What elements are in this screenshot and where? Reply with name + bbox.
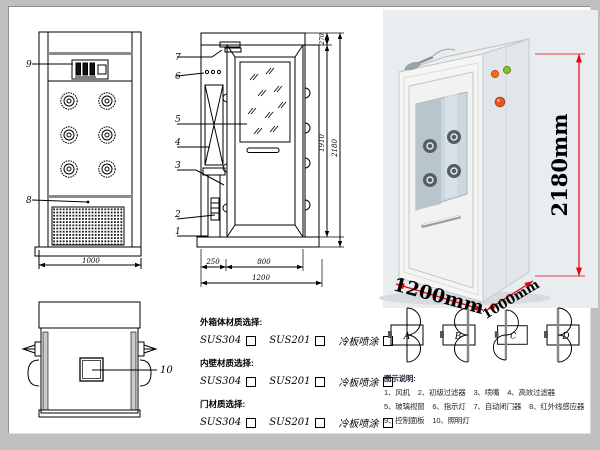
legend: 图示说明: 1、风机 2、初级过滤器 3、喷嘴 4、高效过滤器 5、玻璃视窗 6… bbox=[384, 372, 599, 428]
legend-item: 3、喷嘴 bbox=[473, 388, 499, 397]
material-options-row: SUS304 SUS201 冷板喷涂 bbox=[200, 415, 382, 430]
callout-lamp: 10 bbox=[160, 365, 173, 376]
material-options-row: SUS304 SUS201 冷板喷涂 bbox=[200, 333, 382, 348]
fan-filter-tower bbox=[203, 85, 225, 237]
legend-item: 5、玻璃视窗 bbox=[384, 402, 424, 411]
callout-control-panel: 9 bbox=[26, 60, 32, 70]
legend-item: 6、指示灯 bbox=[432, 402, 465, 411]
material-option-label: 冷板喷涂 bbox=[338, 374, 378, 389]
door-option-d: D bbox=[544, 306, 582, 364]
handle-left bbox=[28, 360, 39, 386]
top-view-drawing: 10 bbox=[22, 292, 187, 432]
air-grille bbox=[52, 207, 124, 245]
legend-item: 2、初级过滤器 bbox=[418, 388, 466, 397]
callout-grille: 8 bbox=[26, 196, 32, 206]
legend-line-2: 5、玻璃视窗 6、指示灯 7、自动闭门器 8、红外线感应器 bbox=[384, 400, 599, 414]
material-selection: 外箱体材质选择: SUS304 SUS201 冷板喷涂 内壁材质选择: SUS3… bbox=[200, 316, 382, 439]
material-option-label: SUS201 bbox=[269, 335, 310, 346]
legend-title: 图示说明: bbox=[384, 372, 599, 386]
material-option-label: SUS304 bbox=[200, 335, 241, 346]
front-view-drawing: 9 8 1000 bbox=[18, 26, 158, 276]
legend-line-3: 9、控制面板 10、照明灯 bbox=[384, 414, 599, 428]
dim-1200: 1200 bbox=[252, 274, 270, 282]
legend-item: 1、风机 bbox=[384, 388, 410, 397]
door-option-label: D bbox=[561, 332, 569, 342]
glass-hatch bbox=[248, 68, 286, 134]
checkbox[interactable] bbox=[246, 377, 256, 387]
section-view-drawing: 7 6 5 4 3 2 1 270 1910 2180 250 800 1200 bbox=[172, 8, 372, 300]
legend-item: 7、自动闭门器 bbox=[473, 402, 521, 411]
base bbox=[35, 247, 141, 256]
dim-2180: 2180 bbox=[331, 139, 339, 158]
legend-item: 4、高效过滤器 bbox=[507, 388, 555, 397]
callout-2: 2 bbox=[174, 210, 181, 220]
checkbox[interactable] bbox=[315, 336, 325, 346]
callout-6: 6 bbox=[175, 72, 181, 82]
legend-item: 9、控制面板 bbox=[384, 416, 424, 425]
checkbox[interactable] bbox=[315, 377, 325, 387]
material-options-row: SUS304 SUS201 冷板喷涂 bbox=[200, 374, 382, 389]
material-group-title: 门材质选择: bbox=[200, 398, 382, 410]
door-swing-options: A B C bbox=[388, 306, 582, 364]
section-base bbox=[197, 237, 319, 247]
drawing-sheet: 9 8 1000 bbox=[0, 0, 600, 450]
callout-1: 1 bbox=[175, 227, 181, 237]
door-option-label: B bbox=[454, 332, 462, 342]
dim-250: 250 bbox=[205, 258, 220, 266]
dim-1910: 1910 bbox=[318, 134, 326, 152]
product-photo: 2180mm 1200mm 1000mm bbox=[383, 10, 598, 308]
material-option-label: SUS201 bbox=[269, 417, 310, 428]
legend-line-1: 1、风机 2、初级过滤器 3、喷嘴 4、高效过滤器 bbox=[384, 386, 599, 400]
handle-right bbox=[140, 360, 151, 386]
nozzle-bumps bbox=[223, 88, 310, 212]
checkbox[interactable] bbox=[315, 418, 325, 428]
callout-4: 4 bbox=[174, 138, 181, 148]
material-option-label: SUS304 bbox=[200, 417, 241, 428]
callout-5: 5 bbox=[175, 115, 181, 125]
door-handle-section bbox=[247, 148, 279, 153]
material-option-label: 冷板喷涂 bbox=[338, 333, 378, 348]
dim-800: 800 bbox=[257, 258, 271, 266]
nozzles-front bbox=[61, 93, 115, 177]
door-option-label: C bbox=[510, 331, 517, 341]
callout-7: 7 bbox=[175, 53, 181, 63]
dim-width-1000: 1000 bbox=[82, 257, 100, 265]
material-option-label: SUS304 bbox=[200, 376, 241, 387]
door-option-c: C bbox=[492, 306, 530, 364]
dim-270: 270 bbox=[319, 33, 326, 46]
photo-dim-height: 2180mm bbox=[547, 114, 572, 217]
legend-item: 10、照明灯 bbox=[432, 416, 469, 425]
door-option-a: A bbox=[388, 306, 426, 364]
top-view-band bbox=[39, 302, 140, 328]
material-option-label: SUS201 bbox=[269, 376, 310, 387]
callout-3: 3 bbox=[175, 161, 181, 171]
legend-item: 8、红外线感应器 bbox=[529, 402, 584, 411]
door-outline bbox=[227, 45, 303, 237]
checkbox[interactable] bbox=[246, 336, 256, 346]
material-group-title: 外箱体材质选择: bbox=[200, 316, 382, 328]
door-option-b: B bbox=[440, 306, 478, 364]
checkbox[interactable] bbox=[246, 418, 256, 428]
door-option-label: A bbox=[403, 332, 411, 342]
material-group-title: 内壁材质选择: bbox=[200, 357, 382, 369]
material-option-label: 冷板喷涂 bbox=[338, 415, 378, 430]
